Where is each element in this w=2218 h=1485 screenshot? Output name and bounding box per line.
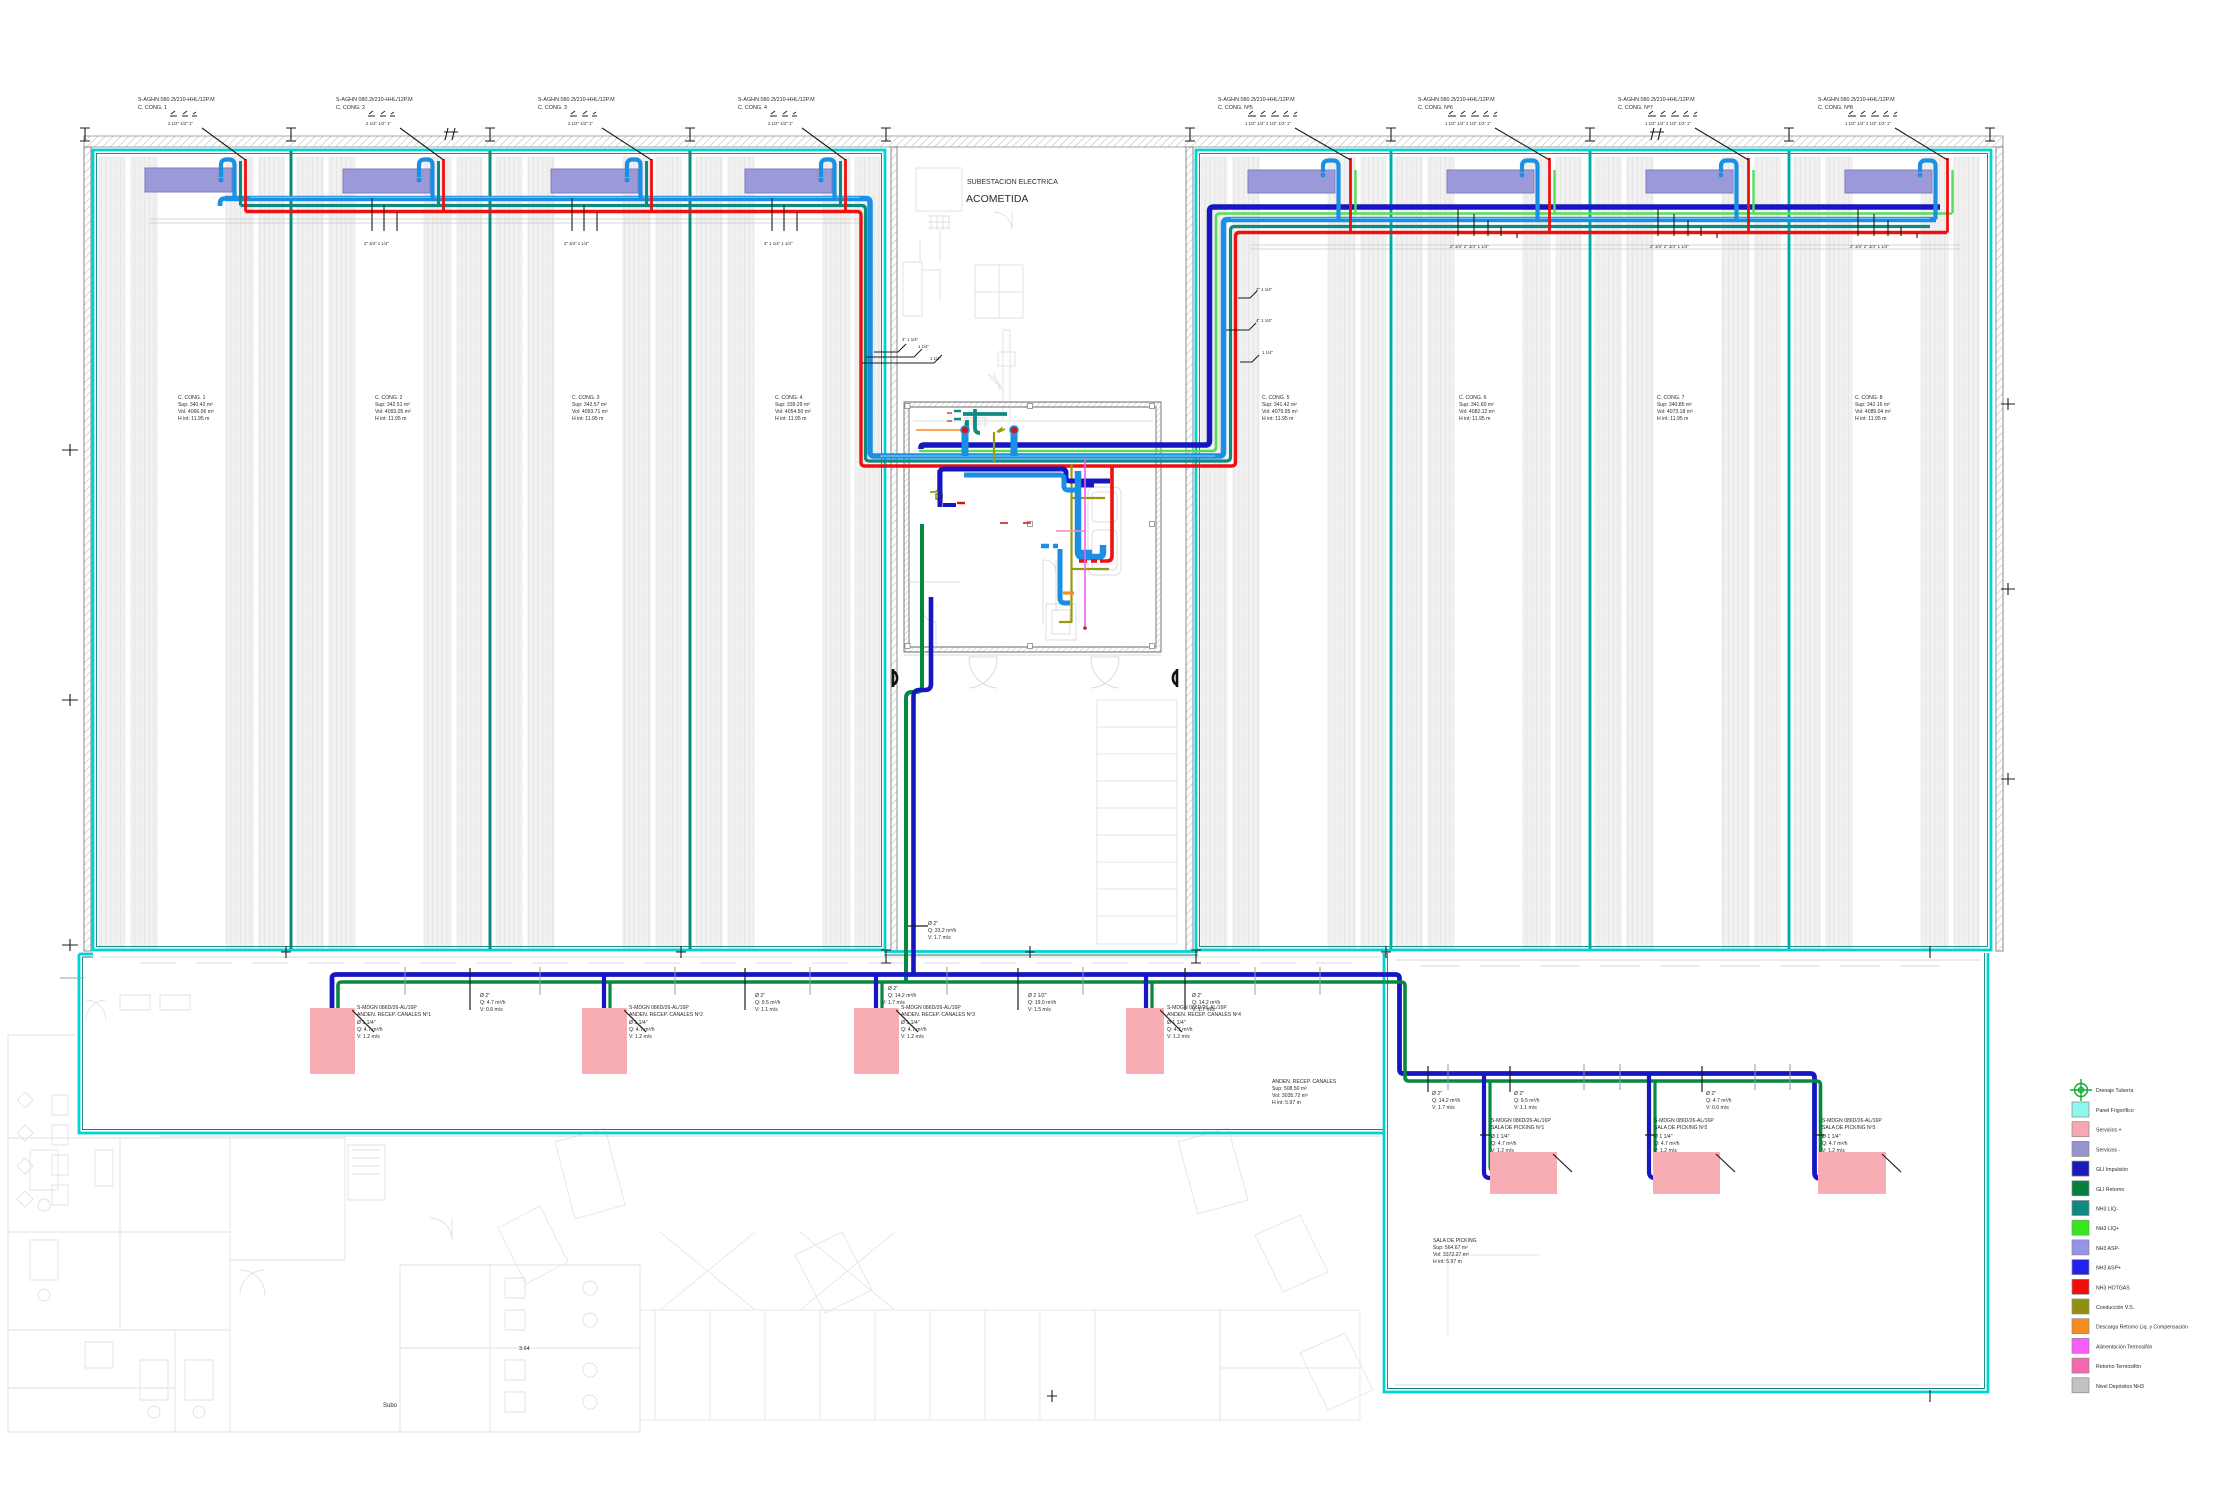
svg-text:4" 1 1/4": 4" 1 1/4": [902, 337, 919, 342]
svg-text:ANDEN. RECEP. CANALES: ANDEN. RECEP. CANALES: [1272, 1079, 1337, 1085]
svg-text:Q: 4.7 m³/h: Q: 4.7 m³/h: [901, 1027, 927, 1033]
svg-text:Ø 2": Ø 2": [1432, 1091, 1442, 1097]
svg-text:S-AGHN 080.2l/210-HHL/12P.M: S-AGHN 080.2l/210-HHL/12P.M: [138, 97, 215, 103]
svg-text:NH3 LIQ-: NH3 LIQ-: [2096, 1207, 2118, 1213]
svg-text:Retorno Termosifón: Retorno Termosifón: [2096, 1364, 2141, 1370]
svg-text:Ø 2": Ø 2": [888, 986, 898, 992]
svg-text:Ø 1 1/4": Ø 1 1/4": [629, 1020, 648, 1026]
svg-text:C. CONG. 6: C. CONG. 6: [1459, 395, 1487, 401]
svg-text:Vol: 4054.50 m³: Vol: 4054.50 m³: [775, 409, 811, 415]
svg-text:C. CONG. 3: C. CONG. 3: [538, 105, 567, 111]
svg-text:C. CONG. Nº8: C. CONG. Nº8: [1818, 105, 1853, 111]
svg-text:Q: 9.5 m³/h: Q: 9.5 m³/h: [755, 1000, 781, 1006]
svg-text:V: 1.2 m/s: V: 1.2 m/s: [1167, 1034, 1190, 1040]
svg-text:Ø 2": Ø 2": [1192, 993, 1202, 999]
svg-text:H int: 11.95 m: H int: 11.95 m: [1262, 416, 1293, 422]
svg-text:Sup: 508.50 m²: Sup: 508.50 m²: [1272, 1086, 1307, 1092]
svg-text:Servicios +: Servicios +: [2096, 1128, 2122, 1134]
svg-text:C. CONG. Nº5: C. CONG. Nº5: [1218, 105, 1253, 111]
svg-text:SALA DE PICKING Nº3: SALA DE PICKING Nº3: [1822, 1125, 1876, 1131]
svg-text:Ø 1 1/4": Ø 1 1/4": [1491, 1134, 1510, 1140]
svg-text:NH3 HOTGAS: NH3 HOTGAS: [2096, 1285, 2130, 1291]
svg-text:C. CONG. 7: C. CONG. 7: [1657, 395, 1685, 401]
svg-text:C. CONG. 1: C. CONG. 1: [138, 105, 167, 111]
svg-text:Sup: 342.51 m²: Sup: 342.51 m²: [375, 402, 410, 408]
svg-text:H int: 11.95 m: H int: 11.95 m: [775, 416, 806, 422]
svg-text:Sup: 341.60 m²: Sup: 341.60 m²: [1459, 402, 1494, 408]
svg-text:Alimentación Termosifón: Alimentación Termosifón: [2096, 1344, 2153, 1350]
svg-text:V: 1.7 m/s: V: 1.7 m/s: [1432, 1105, 1455, 1111]
svg-text:Ø 2": Ø 2": [1706, 1091, 1716, 1097]
svg-text:Vol: 4079.95 m³: Vol: 4079.95 m³: [1262, 409, 1298, 415]
svg-text:C. CONG. 2: C. CONG. 2: [375, 395, 403, 401]
svg-text:C. CONG. 3: C. CONG. 3: [572, 395, 600, 401]
svg-text:Q: 4.7 m³/h: Q: 4.7 m³/h: [629, 1027, 655, 1033]
svg-text:C. CONG. Nº6: C. CONG. Nº6: [1418, 105, 1453, 111]
svg-text:2 1/2" 1/2" 1": 2 1/2" 1/2" 1": [768, 121, 793, 126]
svg-text:H int: 5.97 m: H int: 5.97 m: [1272, 1100, 1301, 1106]
svg-text:Q: 19.0 m³/h: Q: 19.0 m³/h: [1028, 1000, 1056, 1006]
svg-text:S-AGHN 080.2l/210-HHL/12P.M: S-AGHN 080.2l/210-HHL/12P.M: [1618, 97, 1695, 103]
svg-text:S-AGHN 080.2l/210-HHL/12P.M: S-AGHN 080.2l/210-HHL/12P.M: [738, 97, 815, 103]
svg-text:SALA DE PICKING: SALA DE PICKING: [1433, 1238, 1477, 1244]
svg-text:1 1/4": 1 1/4": [930, 356, 942, 361]
svg-text:Q: 14.2 m³/h: Q: 14.2 m³/h: [1432, 1098, 1460, 1104]
svg-text:GLI Impulsión: GLI Impulsión: [2096, 1167, 2128, 1173]
svg-text:SUBESTACION ELECTRICA: SUBESTACION ELECTRICA: [967, 179, 1058, 186]
svg-text:2 1/2" 1/2" 1": 2 1/2" 1/2" 1": [168, 121, 193, 126]
svg-text:Q: 14.2 m³/h: Q: 14.2 m³/h: [1192, 1000, 1220, 1006]
svg-text:Vol: 4089.04 m³: Vol: 4089.04 m³: [1855, 409, 1891, 415]
svg-text:Q: 14.2 m³/h: Q: 14.2 m³/h: [888, 993, 916, 999]
svg-text:Ø 2": Ø 2": [480, 993, 490, 999]
svg-text:S-AGHN 080.2l/210-HHL/12P.M: S-AGHN 080.2l/210-HHL/12P.M: [1218, 97, 1295, 103]
svg-text:H int: 11.95 m: H int: 11.95 m: [1657, 416, 1688, 422]
svg-text:2 1/2" 1/2" 1": 2 1/2" 1/2" 1": [366, 121, 391, 126]
svg-text:1 1/2" 1/2" 2 1/2" 1/2" 1": 1 1/2" 1/2" 2 1/2" 1/2" 1": [1445, 121, 1491, 126]
svg-text:2" 3/4" 1 1/4": 2" 3/4" 1 1/4": [564, 241, 589, 246]
svg-text:H int: 5.97 m: H int: 5.97 m: [1433, 1259, 1462, 1265]
svg-text:Vol: 4082.12 m³: Vol: 4082.12 m³: [1459, 409, 1495, 415]
svg-text:Descarga Retorno Liq. y Compen: Descarga Retorno Liq. y Compensación: [2096, 1325, 2188, 1331]
svg-text:S-MDGN 086D/26-AL/16P: S-MDGN 086D/26-AL/16P: [1491, 1118, 1551, 1124]
svg-text:C. CONG. 1: C. CONG. 1: [178, 395, 206, 401]
svg-text:2" 3/4" 1 1/4": 2" 3/4" 1 1/4": [364, 241, 389, 246]
svg-text:C. CONG. 4: C. CONG. 4: [738, 105, 767, 111]
svg-text:Q: 4.7 m³/h: Q: 4.7 m³/h: [357, 1027, 383, 1033]
svg-text:Sup: 564.67 m²: Sup: 564.67 m²: [1433, 1245, 1468, 1251]
svg-text:2" 3/4" 2" 3/4" 1 1/4": 2" 3/4" 2" 3/4" 1 1/4": [1450, 244, 1489, 249]
svg-text:Q: 33.2 m³/h: Q: 33.2 m³/h: [928, 928, 956, 934]
svg-text:Drenaje Tubería: Drenaje Tubería: [2096, 1088, 2133, 1094]
svg-text:ANDEN. RECEP. CANALES Nº1: ANDEN. RECEP. CANALES Nº1: [357, 1012, 431, 1018]
svg-text:H int: 11.95 m: H int: 11.95 m: [178, 416, 209, 422]
svg-text:V: 1.7 m/s: V: 1.7 m/s: [882, 1000, 905, 1006]
svg-text:V: 1.7 m/s: V: 1.7 m/s: [928, 935, 951, 941]
svg-text:1 1/4": 1 1/4": [1262, 350, 1274, 355]
svg-text:V: 1.1 m/s: V: 1.1 m/s: [1514, 1105, 1537, 1111]
svg-text:C. CONG. 2: C. CONG. 2: [336, 105, 365, 111]
svg-text:V: 1.2 m/s: V: 1.2 m/s: [1491, 1148, 1514, 1154]
svg-text:2 1/2" 1/2" 1": 2 1/2" 1/2" 1": [568, 121, 593, 126]
svg-text:V: 1.5 m/s: V: 1.5 m/s: [1028, 1007, 1051, 1013]
svg-text:Q: 4.7 m³/h: Q: 4.7 m³/h: [1491, 1141, 1517, 1147]
svg-text:Ø 1 1/4": Ø 1 1/4": [1654, 1134, 1673, 1140]
svg-text:S-MDGN 086D/26-AL/16P: S-MDGN 086D/26-AL/16P: [357, 1005, 417, 1011]
svg-text:Ø 2 1/2": Ø 2 1/2": [1028, 993, 1047, 999]
svg-text:Ø 1 1/4": Ø 1 1/4": [357, 1020, 376, 1026]
svg-text:Vol: 4093.71 m³: Vol: 4093.71 m³: [572, 409, 608, 415]
svg-text:V: 1.2 m/s: V: 1.2 m/s: [1822, 1148, 1845, 1154]
svg-text:H int: 11.95 m: H int: 11.95 m: [1459, 416, 1490, 422]
svg-text:Sup: 342.16 m²: Sup: 342.16 m²: [1855, 402, 1890, 408]
svg-text:Q: 4.7 m³/h: Q: 4.7 m³/h: [1822, 1141, 1848, 1147]
svg-text:Conducción V.S.: Conducción V.S.: [2096, 1305, 2134, 1311]
svg-text:NH3 LIQ+: NH3 LIQ+: [2096, 1226, 2119, 1232]
svg-text:Panel Frigorífico: Panel Frigorífico: [2096, 1108, 2134, 1114]
svg-text:Ø 1 1/4": Ø 1 1/4": [1167, 1020, 1186, 1026]
svg-text:1 1/2" 1/2" 2 1/2" 1/2" 1": 1 1/2" 1/2" 2 1/2" 1/2" 1": [1845, 121, 1891, 126]
svg-text:S-AGHN 080.2l/210-HHL/12P.M: S-AGHN 080.2l/210-HHL/12P.M: [1818, 97, 1895, 103]
svg-text:NH3 ASP+: NH3 ASP+: [2096, 1266, 2121, 1272]
svg-text:H int: 11.95 m: H int: 11.95 m: [375, 416, 406, 422]
svg-text:C. CONG. 4: C. CONG. 4: [775, 395, 803, 401]
svg-text:S-MDGN 086D/26-AL/16P: S-MDGN 086D/26-AL/16P: [901, 1005, 961, 1011]
svg-text:S-MDGN 086D/26-AL/16P: S-MDGN 086D/26-AL/16P: [1822, 1118, 1882, 1124]
svg-text:Vol: 3035.72 m³: Vol: 3035.72 m³: [1272, 1093, 1308, 1099]
svg-text:1 1/2" 1/2" 2 1/2" 1/2" 1": 1 1/2" 1/2" 2 1/2" 1/2" 1": [1645, 121, 1691, 126]
svg-text:H int: 11.95 m: H int: 11.95 m: [572, 416, 603, 422]
svg-text:Ø 2": Ø 2": [1514, 1091, 1524, 1097]
svg-text:V: 1.2 m/s: V: 1.2 m/s: [629, 1034, 652, 1040]
svg-text:2" 1 1/4": 2" 1 1/4": [1256, 287, 1273, 292]
svg-text:ANDEN. RECEP. CANALES Nº3: ANDEN. RECEP. CANALES Nº3: [901, 1012, 975, 1018]
svg-text:H int: 11.95 m: H int: 11.95 m: [1855, 416, 1886, 422]
svg-text:V: 0.6 m/s: V: 0.6 m/s: [1706, 1105, 1729, 1111]
svg-text:Q: 4.7 m³/h: Q: 4.7 m³/h: [1654, 1141, 1680, 1147]
svg-text:ANDEN. RECEP. CANALES Nº2: ANDEN. RECEP. CANALES Nº2: [629, 1012, 703, 1018]
svg-text:1 1/2" 1/2" 2 1/2" 1/2" 1": 1 1/2" 1/2" 2 1/2" 1/2" 1": [1245, 121, 1291, 126]
svg-text:Vol: 4073.18 m³: Vol: 4073.18 m³: [1657, 409, 1693, 415]
svg-text:2" 3/4" 2" 3/4" 1 1/4": 2" 3/4" 2" 3/4" 1 1/4": [1650, 244, 1689, 249]
svg-text:Nivel Depósitos NH3: Nivel Depósitos NH3: [2096, 1384, 2144, 1390]
svg-text:Ø 1 1/4": Ø 1 1/4": [1822, 1134, 1841, 1140]
svg-text:Sup: 341.42 m²: Sup: 341.42 m²: [1262, 402, 1297, 408]
svg-text:C. CONG. 8: C. CONG. 8: [1855, 395, 1883, 401]
svg-text:SALA DE PICKING Nº2: SALA DE PICKING Nº2: [1654, 1125, 1708, 1131]
svg-text:Sup: 339.29 m²: Sup: 339.29 m²: [775, 402, 810, 408]
svg-text:3.64: 3.64: [519, 1346, 530, 1352]
svg-text:Subo: Subo: [383, 1403, 398, 1409]
svg-text:Servicios -: Servicios -: [2096, 1147, 2120, 1153]
svg-text:GLI Retorno: GLI Retorno: [2096, 1187, 2124, 1193]
svg-text:S-AGHN 080.2l/210-HHL/12P.M: S-AGHN 080.2l/210-HHL/12P.M: [1418, 97, 1495, 103]
svg-text:Sup: 342.57 m²: Sup: 342.57 m²: [572, 402, 607, 408]
svg-text:Vol: 4093.05 m³: Vol: 4093.05 m³: [375, 409, 411, 415]
svg-text:Q: 4.7 m³/h: Q: 4.7 m³/h: [480, 1000, 506, 1006]
svg-text:S-AGHN 080.2l/210-HHL/12P.M: S-AGHN 080.2l/210-HHL/12P.M: [538, 97, 615, 103]
svg-text:Q: 9.5 m³/h: Q: 9.5 m³/h: [1514, 1098, 1540, 1104]
svg-text:Ø 2": Ø 2": [755, 993, 765, 999]
svg-text:V: 1.2 m/s: V: 1.2 m/s: [1654, 1148, 1677, 1154]
svg-text:C. CONG. Nº7: C. CONG. Nº7: [1618, 105, 1653, 111]
svg-text:Q: 4.7 m³/h: Q: 4.7 m³/h: [1706, 1098, 1732, 1104]
svg-text:Q: 4.7 m³/h: Q: 4.7 m³/h: [1167, 1027, 1193, 1033]
svg-text:V: 1.2 m/s: V: 1.2 m/s: [357, 1034, 380, 1040]
svg-text:4" 1 1/4" 1 1/4": 4" 1 1/4" 1 1/4": [764, 241, 793, 246]
svg-text:Vol: 3372.27 m³: Vol: 3372.27 m³: [1433, 1252, 1469, 1258]
svg-text:2" 3/4" 2" 3/4" 1 1/4": 2" 3/4" 2" 3/4" 1 1/4": [1850, 244, 1889, 249]
svg-text:Vol: 4066.06 m³: Vol: 4066.06 m³: [178, 409, 214, 415]
svg-text:V: 1.1 m/s: V: 1.1 m/s: [755, 1007, 778, 1013]
svg-text:V: 0.6 m/s: V: 0.6 m/s: [480, 1007, 503, 1013]
svg-text:S-MDGN 086D/26-AL/16P: S-MDGN 086D/26-AL/16P: [629, 1005, 689, 1011]
svg-text:C. CONG. 5: C. CONG. 5: [1262, 395, 1290, 401]
svg-text:ACOMETIDA: ACOMETIDA: [966, 193, 1028, 205]
svg-text:1 1/4": 1 1/4": [918, 344, 930, 349]
svg-text:Sup: 340.42 m²: Sup: 340.42 m²: [178, 402, 213, 408]
svg-text:4" 1 1/4": 4" 1 1/4": [1256, 318, 1273, 323]
svg-text:V: 1.7 m/s: V: 1.7 m/s: [1192, 1007, 1215, 1013]
svg-text:Ø 1 1/4": Ø 1 1/4": [901, 1020, 920, 1026]
svg-text:SALA DE PICKING Nº1: SALA DE PICKING Nº1: [1491, 1125, 1545, 1131]
svg-text:S-AGHN 080.2l/210-HHL/12P.M: S-AGHN 080.2l/210-HHL/12P.M: [336, 97, 413, 103]
svg-text:Sup: 340.85 m²: Sup: 340.85 m²: [1657, 402, 1692, 408]
svg-text:Ø 2": Ø 2": [928, 921, 938, 927]
svg-text:V: 1.2 m/s: V: 1.2 m/s: [901, 1034, 924, 1040]
svg-text:S-MDGN 086D/26-AL/16P: S-MDGN 086D/26-AL/16P: [1654, 1118, 1714, 1124]
svg-text:NH3 ASP-: NH3 ASP-: [2096, 1246, 2120, 1252]
